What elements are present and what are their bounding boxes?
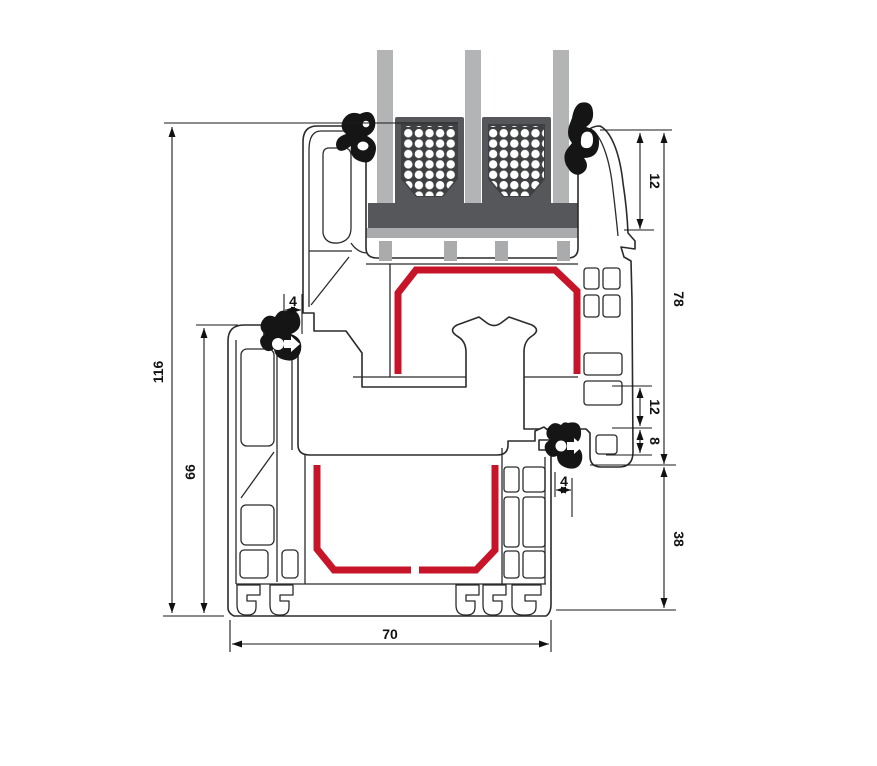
dimension-gasket-right: 4 xyxy=(555,472,572,517)
spacer-block-left xyxy=(395,117,464,205)
glass-pane-outer xyxy=(377,50,393,205)
dim-label-gasket-left: 4 xyxy=(289,293,297,309)
dim-label-gasket-right: 4 xyxy=(560,473,568,489)
window-cross-section-diagram: 116 66 4 12 78 12 xyxy=(0,0,877,766)
setting-block xyxy=(368,203,580,228)
glazing-bridge-strip xyxy=(363,228,584,238)
dim-label-frame-depth: 70 xyxy=(382,626,398,642)
dimension-frame-depth: 70 xyxy=(230,620,551,652)
bridge-tooth xyxy=(557,241,570,261)
glazing-unit xyxy=(363,50,584,238)
dim-label-seal-overlap: 8 xyxy=(647,437,663,445)
glass-pane-inner xyxy=(553,50,569,205)
dim-label-frame-height: 66 xyxy=(182,464,198,480)
bridge-tooth xyxy=(444,241,457,261)
dim-label-glazing-inset: 12 xyxy=(647,173,663,189)
bridge-tooth xyxy=(495,241,508,261)
spacer-block-right xyxy=(482,117,551,205)
dim-label-rebate-gap: 12 xyxy=(647,399,663,415)
dim-label-overall-height: 116 xyxy=(150,360,166,383)
dim-label-frame-face-height: 38 xyxy=(671,531,687,547)
diagram-canvas: 116 66 4 12 78 12 xyxy=(0,0,877,766)
glass-pane-middle xyxy=(465,50,481,205)
dim-label-sash-section-height: 78 xyxy=(671,291,687,307)
dimension-frame-face-height: 38 xyxy=(556,467,687,610)
bridge-tooth xyxy=(379,241,392,261)
